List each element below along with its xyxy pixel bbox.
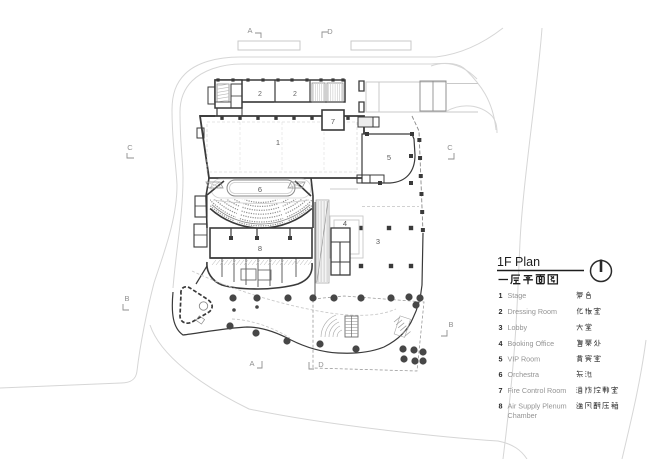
svg-text:C: C [127, 143, 133, 152]
svg-text:5: 5 [499, 354, 503, 363]
svg-text:5: 5 [387, 153, 391, 162]
svg-text:Chamber: Chamber [508, 411, 538, 420]
svg-text:D: D [318, 360, 324, 369]
svg-text:6: 6 [258, 185, 262, 194]
svg-text:3: 3 [499, 323, 503, 332]
svg-text:2: 2 [293, 91, 297, 98]
svg-text:7: 7 [331, 117, 335, 126]
svg-text:B: B [448, 320, 453, 329]
svg-text:Lobby: Lobby [508, 323, 528, 332]
svg-text:1F Plan: 1F Plan [497, 255, 540, 269]
svg-text:6: 6 [499, 370, 503, 379]
svg-text:1: 1 [276, 138, 280, 147]
svg-text:4: 4 [343, 219, 347, 228]
svg-text:Stage: Stage [508, 291, 527, 300]
svg-text:Dressing Room: Dressing Room [508, 307, 558, 316]
svg-text:1: 1 [499, 291, 503, 300]
svg-text:8: 8 [258, 244, 262, 253]
svg-text:2: 2 [499, 307, 503, 316]
svg-text:Air Supply Plenum: Air Supply Plenum [508, 401, 567, 410]
svg-text:4: 4 [499, 339, 503, 348]
svg-text:B: B [124, 294, 129, 303]
svg-text:C: C [447, 143, 453, 152]
svg-text:Fire Control Room: Fire Control Room [508, 386, 567, 395]
svg-text:8: 8 [499, 401, 503, 410]
svg-text:Booking Office: Booking Office [508, 339, 555, 348]
svg-text:3: 3 [376, 237, 380, 246]
svg-text:7: 7 [499, 386, 503, 395]
svg-text:VIP Room: VIP Room [508, 354, 541, 363]
svg-text:2: 2 [258, 91, 262, 98]
svg-text:A: A [249, 359, 254, 368]
svg-text:Orchestra: Orchestra [508, 370, 540, 379]
svg-text:D: D [327, 27, 333, 36]
svg-text:A: A [247, 26, 252, 35]
